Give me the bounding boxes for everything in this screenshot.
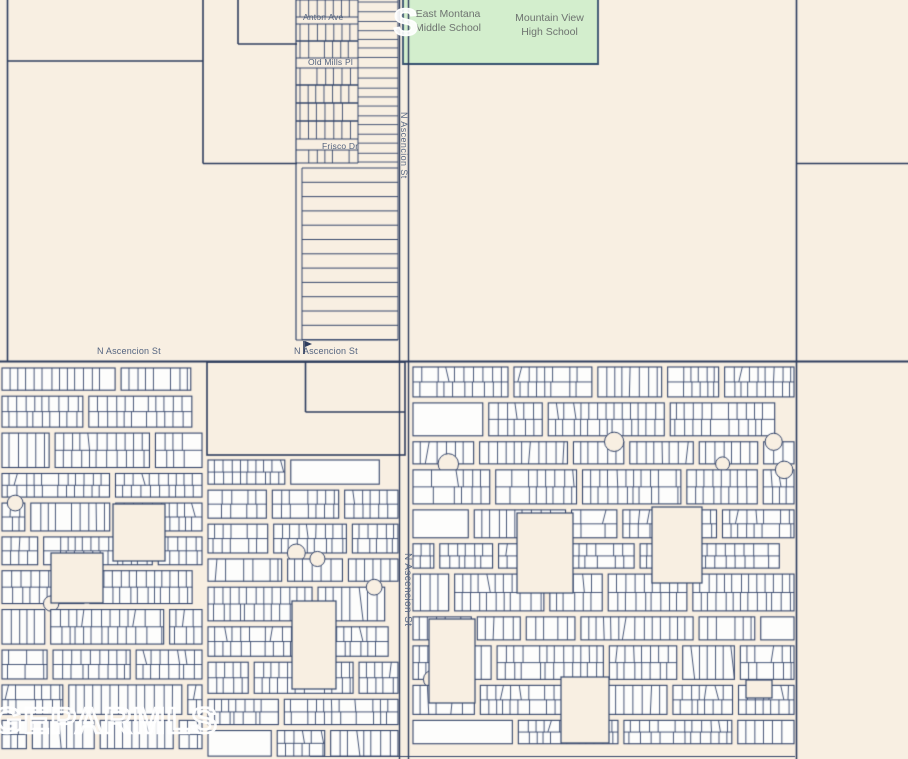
school-label-high: Mountain View High School	[502, 12, 597, 39]
street-label-old-mills-pl: Old Mills Pl	[308, 57, 353, 67]
street-label-frisco-dr: Frisco Dr	[322, 141, 358, 151]
mls-watermark: GEPARMLS	[0, 700, 218, 742]
flag-marker-icon	[301, 340, 313, 355]
road-label-ascencion-lower: N Ascencion St	[402, 553, 413, 626]
mls-watermark-fragment: S	[393, 2, 418, 45]
street-label-ascencion-west: N Ascencion St	[97, 346, 161, 356]
street-label-anton-ave: Anton Ave	[303, 12, 343, 22]
road-label-ascencion-upper: N Ascencion St	[399, 112, 409, 179]
parcel-map-canvas	[0, 0, 908, 759]
map-viewport[interactable]: East Montana Middle School Mountain View…	[0, 0, 908, 759]
